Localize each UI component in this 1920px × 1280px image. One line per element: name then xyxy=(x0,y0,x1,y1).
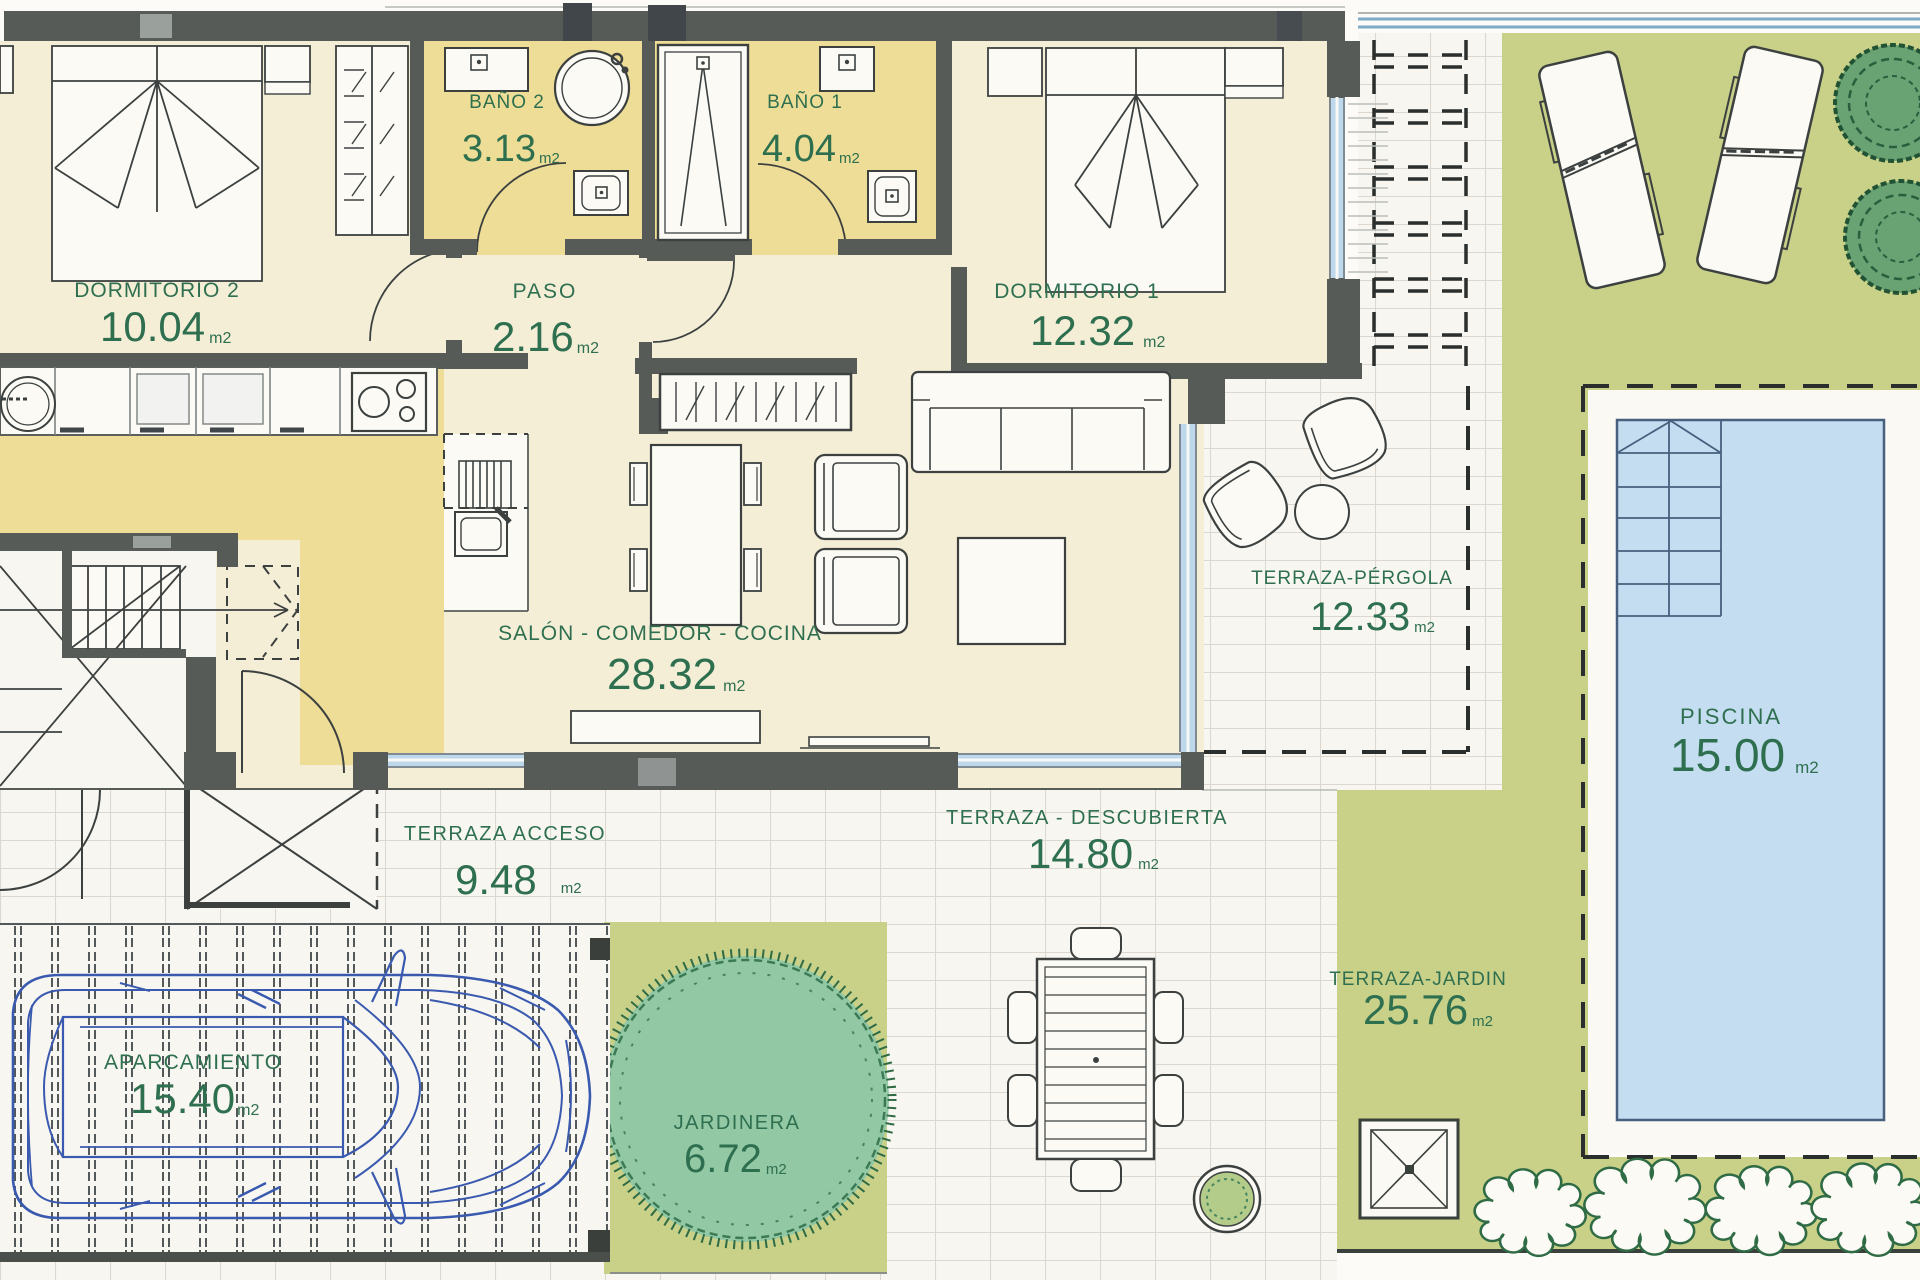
svg-text:APARCAMIENTO: APARCAMIENTO xyxy=(104,1051,282,1074)
svg-text:JARDINERA: JARDINERA xyxy=(674,1112,801,1134)
svg-text:BAÑO 2: BAÑO 2 xyxy=(469,91,545,113)
svg-text:TERRAZA ACCESO: TERRAZA ACCESO xyxy=(404,823,606,845)
svg-text:DORMITORIO 2: DORMITORIO 2 xyxy=(74,279,240,302)
svg-text:PISCINA: PISCINA xyxy=(1680,704,1782,729)
svg-text:BAÑO 1: BAÑO 1 xyxy=(767,91,843,113)
svg-text:SALÓN - COMEDOR - COCINA: SALÓN - COMEDOR - COCINA xyxy=(498,622,822,645)
svg-text:TERRAZA - DESCUBIERTA: TERRAZA - DESCUBIERTA xyxy=(946,807,1228,829)
svg-text:TERRAZA-PÉRGOLA: TERRAZA-PÉRGOLA xyxy=(1251,568,1453,589)
svg-text:DORMITORIO 1: DORMITORIO 1 xyxy=(994,280,1160,303)
svg-text:PASO: PASO xyxy=(513,280,578,303)
